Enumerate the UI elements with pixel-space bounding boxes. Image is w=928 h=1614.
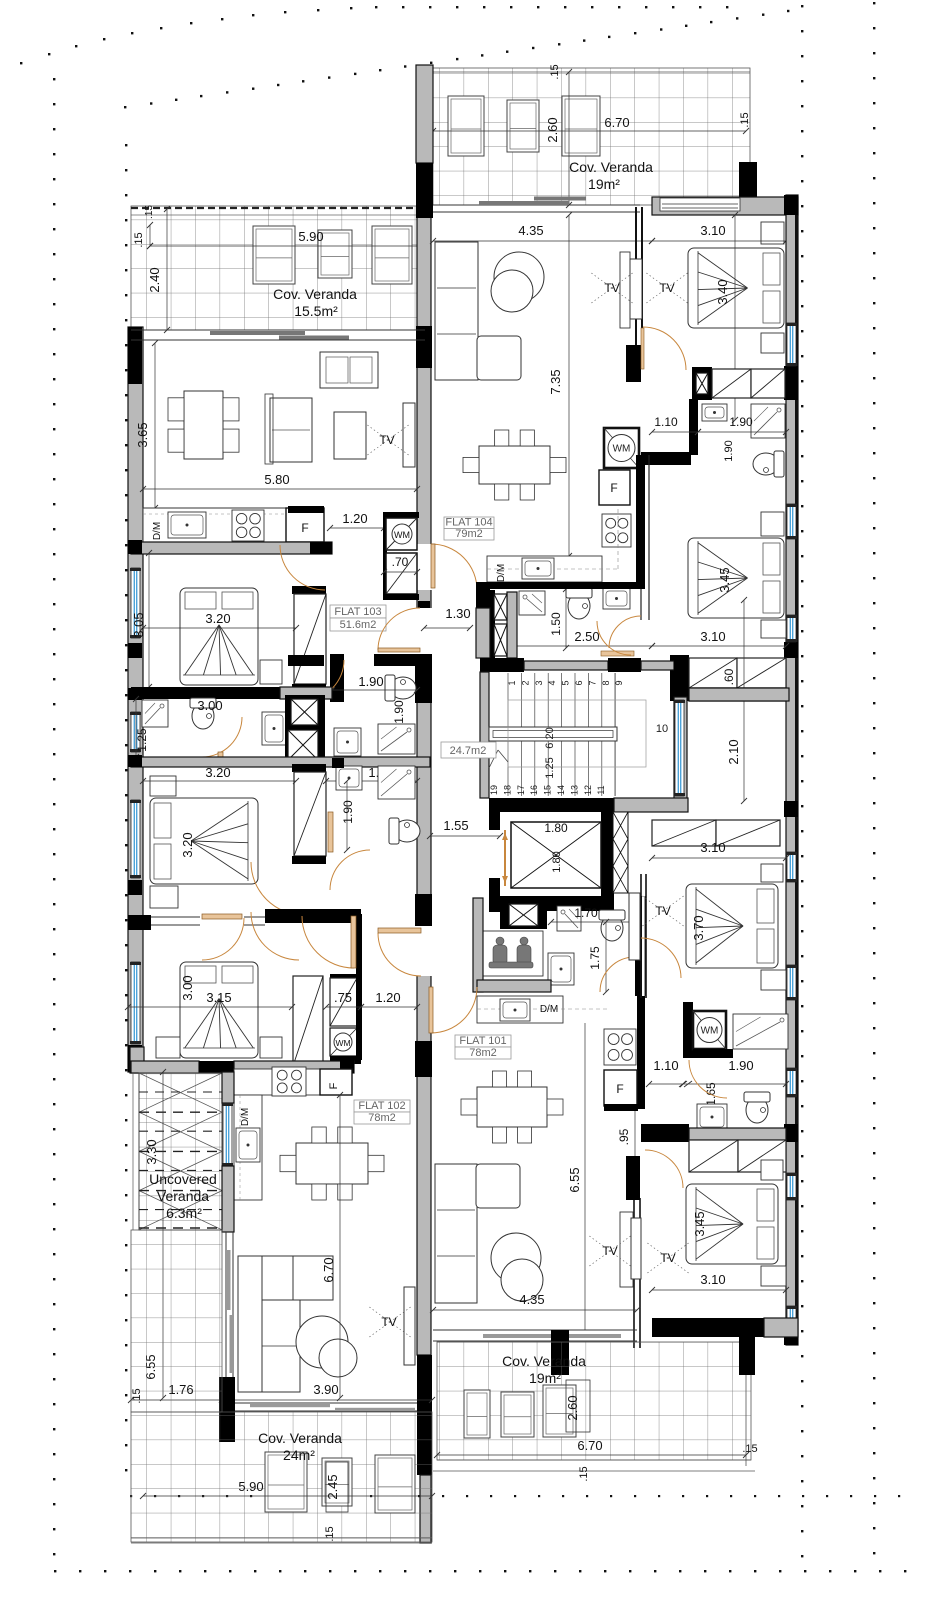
svg-text:2.50: 2.50 (574, 629, 599, 644)
svg-text:12: 12 (583, 785, 593, 795)
svg-text:11: 11 (596, 785, 606, 794)
svg-text:19m²: 19m² (529, 1370, 561, 1386)
svg-text:1.90: 1.90 (341, 800, 355, 824)
svg-text:2: 2 (520, 680, 530, 685)
svg-text:3.00: 3.00 (180, 975, 195, 1000)
svg-text:1.80: 1.80 (544, 821, 568, 835)
svg-text:3: 3 (534, 680, 544, 685)
svg-text:3.20: 3.20 (180, 832, 195, 857)
svg-text:24m²: 24m² (283, 1447, 315, 1463)
svg-text:TV: TV (381, 1315, 396, 1329)
svg-text:Uncovered: Uncovered (149, 1171, 217, 1187)
svg-text:F: F (301, 521, 308, 535)
svg-text:16: 16 (529, 785, 539, 795)
svg-text:3.15: 3.15 (206, 990, 231, 1005)
svg-text:1.90: 1.90 (358, 674, 383, 689)
svg-text:1.30: 1.30 (445, 606, 470, 621)
svg-text:FLAT 102: FLAT 102 (358, 1100, 405, 1112)
svg-text:15: 15 (543, 785, 553, 795)
svg-text:F: F (328, 1082, 340, 1089)
svg-text:Veranda: Veranda (157, 1188, 209, 1204)
svg-text:10: 10 (656, 723, 668, 735)
svg-text:1.25: 1.25 (135, 728, 149, 752)
svg-text:13: 13 (569, 785, 579, 795)
svg-text:F: F (610, 481, 617, 495)
svg-text:14: 14 (556, 785, 566, 795)
svg-text:.15: .15 (549, 64, 561, 79)
svg-text:.95: .95 (617, 1128, 631, 1145)
svg-text:3.10: 3.10 (700, 1272, 725, 1287)
svg-text:3.30: 3.30 (144, 1139, 159, 1164)
svg-text:3.45: 3.45 (717, 567, 732, 592)
svg-text:D/M: D/M (240, 1108, 251, 1126)
svg-text:6.55: 6.55 (567, 1167, 582, 1192)
svg-text:3.20: 3.20 (205, 765, 230, 780)
svg-text:WM: WM (613, 444, 631, 455)
svg-text:3.20: 3.20 (205, 611, 230, 626)
svg-text:.70: .70 (392, 555, 409, 569)
svg-text:FLAT 103: FLAT 103 (334, 606, 381, 618)
svg-text:TV: TV (602, 1244, 617, 1258)
svg-text:.75: .75 (334, 990, 352, 1005)
svg-text:2.60: 2.60 (565, 1395, 580, 1420)
svg-text:1.70: 1.70 (574, 906, 598, 920)
svg-text:5.80: 5.80 (264, 472, 289, 487)
svg-text:4: 4 (547, 680, 557, 685)
svg-text:6.3m²: 6.3m² (166, 1205, 202, 1221)
svg-text:3.40: 3.40 (715, 279, 730, 304)
svg-text:1.50: 1.50 (549, 612, 563, 636)
svg-text:2.10: 2.10 (726, 739, 741, 764)
svg-text:5.90: 5.90 (298, 229, 323, 244)
svg-text:3.00: 3.00 (197, 698, 222, 713)
svg-text:1.75: 1.75 (588, 946, 602, 970)
svg-text:3.70: 3.70 (691, 915, 706, 940)
svg-text:5: 5 (561, 680, 571, 685)
svg-text:.15: .15 (144, 205, 155, 219)
svg-text:1.90: 1.90 (729, 415, 753, 429)
svg-text:.15: .15 (578, 1466, 590, 1481)
svg-text:3.10: 3.10 (700, 840, 725, 855)
svg-text:1: 1 (507, 680, 517, 685)
svg-text:.15: .15 (133, 232, 145, 247)
svg-text:F: F (616, 1082, 623, 1096)
svg-text:D/M: D/M (496, 564, 507, 582)
svg-text:7: 7 (587, 680, 597, 685)
svg-text:78m2: 78m2 (469, 1047, 497, 1059)
svg-text:WM: WM (701, 1026, 719, 1037)
svg-text:19: 19 (489, 785, 499, 795)
svg-text:1.25: 1.25 (544, 757, 556, 778)
svg-text:19m²: 19m² (588, 176, 620, 192)
svg-text:18: 18 (502, 785, 512, 795)
svg-text:3.10: 3.10 (700, 629, 725, 644)
svg-text:6: 6 (574, 680, 584, 685)
svg-text:79m2: 79m2 (455, 528, 483, 540)
svg-text:WM: WM (394, 530, 410, 540)
svg-text:Cov. Veranda: Cov. Veranda (569, 159, 653, 175)
svg-text:3.90: 3.90 (313, 1382, 338, 1397)
svg-text:D/M: D/M (540, 1004, 558, 1015)
svg-text:8: 8 (601, 680, 611, 685)
svg-text:FLAT 104: FLAT 104 (445, 517, 492, 529)
svg-text:WM: WM (335, 1038, 350, 1048)
svg-text:.15: .15 (324, 1526, 336, 1541)
svg-text:9: 9 (614, 680, 624, 685)
svg-text:15.5m²: 15.5m² (294, 303, 338, 319)
svg-text:4.35: 4.35 (518, 223, 543, 238)
svg-text:1.80: 1.80 (551, 851, 563, 872)
svg-text:Cov. Veranda: Cov. Veranda (502, 1353, 586, 1369)
svg-text:3.05: 3.05 (131, 612, 146, 637)
svg-text:FLAT 101: FLAT 101 (459, 1035, 506, 1047)
svg-text:TV: TV (655, 904, 670, 918)
svg-text:5.90: 5.90 (238, 1479, 263, 1494)
svg-text:24.7m2: 24.7m2 (450, 745, 487, 757)
svg-text:7.35: 7.35 (548, 369, 563, 394)
svg-text:6.20: 6.20 (544, 727, 556, 748)
svg-text:1.20: 1.20 (342, 511, 367, 526)
svg-text:1.90: 1.90 (728, 1058, 753, 1073)
svg-text:1.20: 1.20 (375, 990, 400, 1005)
svg-text:.15: .15 (739, 112, 751, 127)
svg-text:2.60: 2.60 (545, 117, 560, 142)
svg-text:1.90: 1.90 (723, 440, 735, 461)
svg-text:2.45: 2.45 (325, 1474, 340, 1499)
svg-text:TV: TV (660, 1251, 675, 1265)
svg-text:.15: .15 (742, 1443, 757, 1455)
svg-text:TV: TV (659, 281, 674, 295)
svg-text:Cov. Veranda: Cov. Veranda (258, 1430, 342, 1446)
svg-text:1.10: 1.10 (654, 415, 678, 429)
svg-text:4.35: 4.35 (519, 1292, 544, 1307)
svg-text:3.45: 3.45 (692, 1211, 707, 1236)
svg-text:TV: TV (379, 433, 394, 447)
svg-text:Cov. Veranda: Cov. Veranda (273, 286, 357, 302)
svg-text:3.65: 3.65 (135, 422, 150, 447)
svg-text:6.70: 6.70 (577, 1438, 602, 1453)
svg-text:1.90: 1.90 (392, 700, 406, 724)
svg-text:2.40: 2.40 (147, 267, 162, 292)
svg-text:1.10: 1.10 (653, 1058, 678, 1073)
svg-text:1.65: 1.65 (704, 1082, 718, 1106)
svg-text:3.10: 3.10 (700, 223, 725, 238)
svg-text:6.70: 6.70 (321, 1257, 336, 1282)
svg-text:D/M: D/M (152, 522, 163, 540)
svg-text:TV: TV (604, 281, 619, 295)
svg-text:.60: .60 (722, 668, 736, 685)
svg-text:78m2: 78m2 (368, 1112, 396, 1124)
svg-text:6.70: 6.70 (604, 115, 629, 130)
svg-text:51.6m2: 51.6m2 (340, 619, 377, 631)
svg-text:1.55: 1.55 (443, 818, 468, 833)
svg-text:17: 17 (516, 785, 526, 795)
